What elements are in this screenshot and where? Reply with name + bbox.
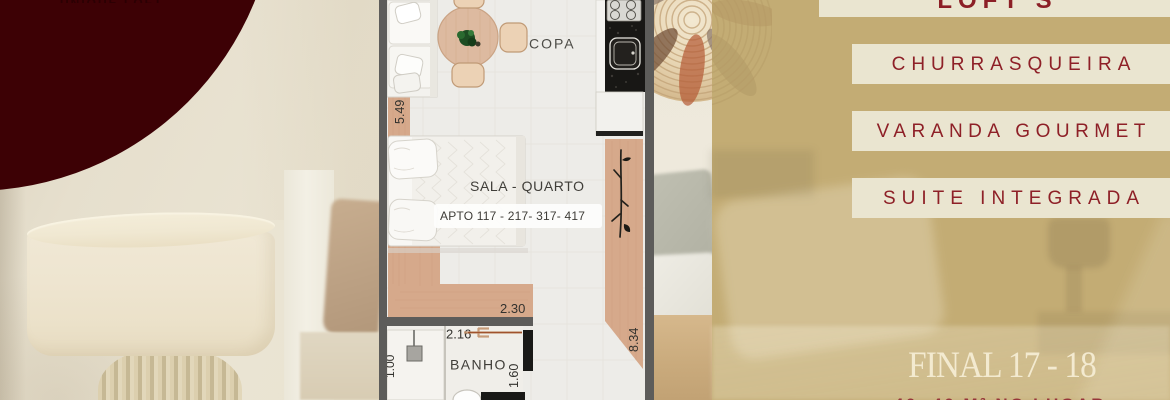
svg-text:5.49: 5.49: [393, 100, 407, 124]
svg-text:8.34: 8.34: [627, 328, 641, 352]
svg-text:COPA: COPA: [529, 36, 576, 52]
svg-text:APTO 117 - 217- 317- 417: APTO 117 - 217- 317- 417: [440, 209, 585, 223]
svg-text:BANHO: BANHO: [450, 357, 507, 373]
svg-text:SALA - QUARTO: SALA - QUARTO: [470, 178, 585, 194]
svg-text:1.60: 1.60: [507, 364, 521, 388]
svg-text:2.16: 2.16: [446, 327, 471, 342]
svg-text:2.30: 2.30: [500, 301, 525, 316]
